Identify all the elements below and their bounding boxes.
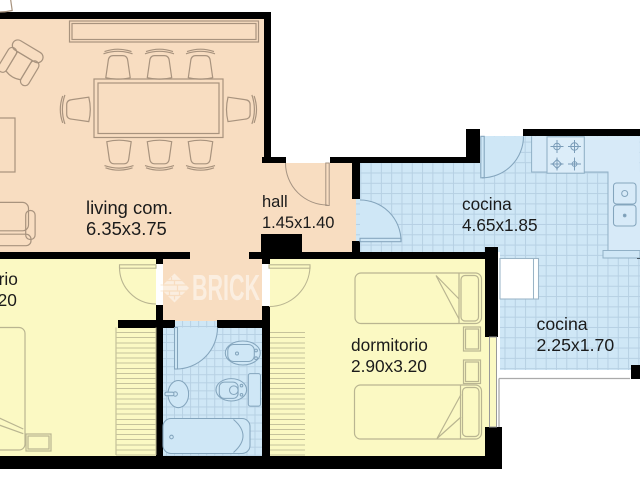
- svg-text:BRICK: BRICK: [192, 268, 260, 308]
